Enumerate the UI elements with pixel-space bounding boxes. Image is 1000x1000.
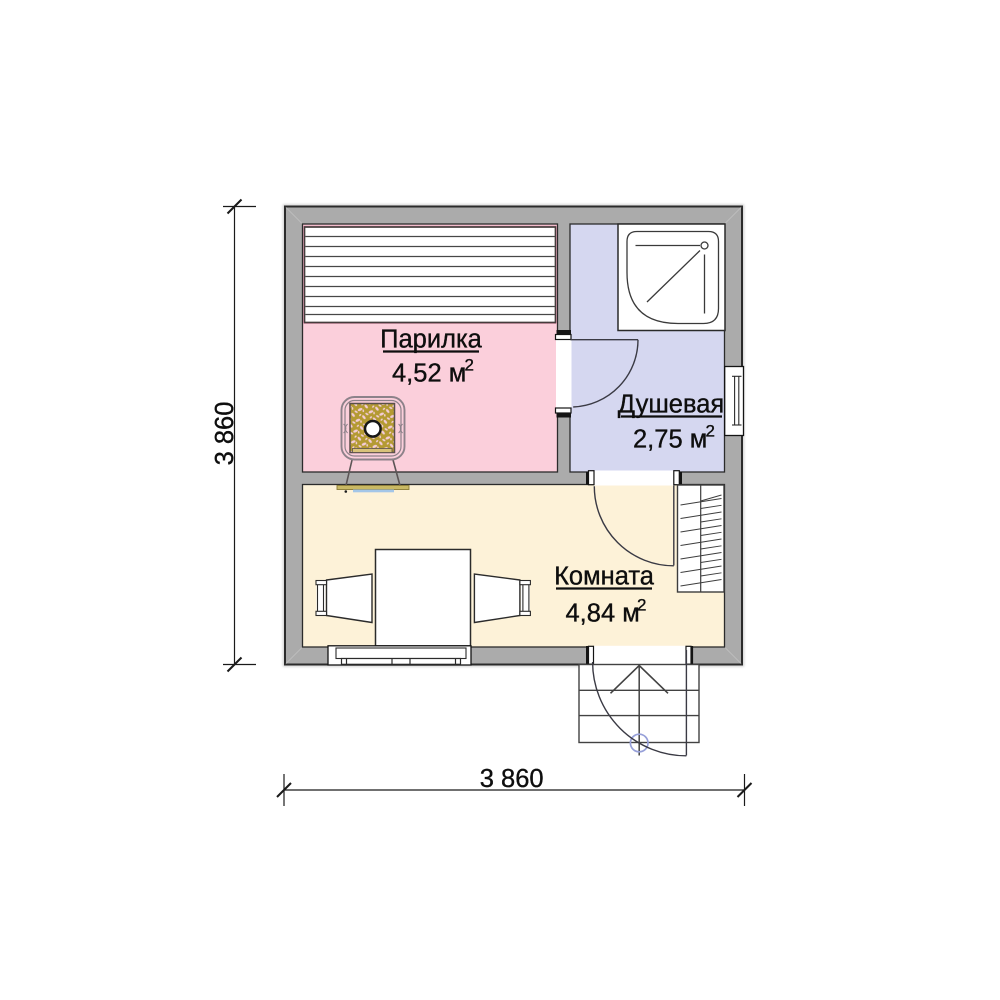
svg-text:2: 2 bbox=[637, 596, 646, 615]
svg-text:Душевая: Душевая bbox=[618, 391, 724, 419]
svg-text:2,75 м: 2,75 м bbox=[633, 426, 707, 454]
svg-text:2: 2 bbox=[465, 356, 474, 375]
svg-text:4,84 м: 4,84 м bbox=[566, 600, 640, 628]
svg-text:3 860: 3 860 bbox=[211, 402, 239, 466]
svg-text:3 860: 3 860 bbox=[480, 765, 544, 793]
svg-text:2: 2 bbox=[706, 422, 715, 441]
svg-text:Парилка: Парилка bbox=[380, 326, 483, 354]
svg-text:4,52 м: 4,52 м bbox=[392, 360, 466, 388]
svg-text:Комната: Комната bbox=[554, 563, 655, 591]
